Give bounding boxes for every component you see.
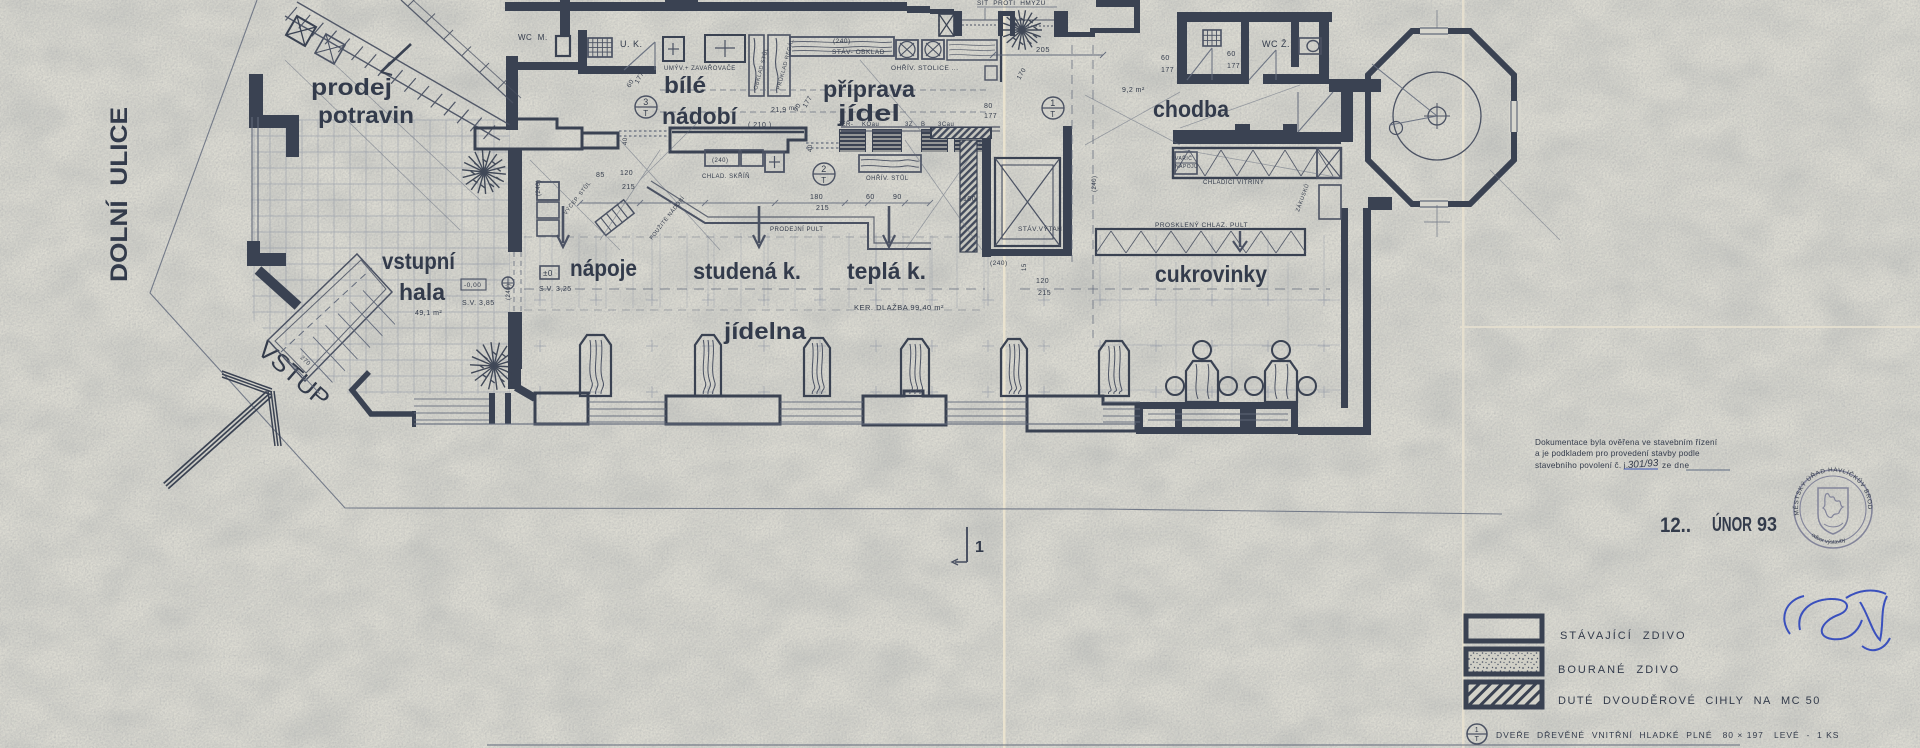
- svg-text:příprava: příprava: [823, 76, 915, 102]
- svg-text:93: 93: [1757, 514, 1777, 536]
- svg-text:9,2 m²: 9,2 m²: [1122, 87, 1145, 94]
- svg-text:nápoje: nápoje: [570, 255, 637, 281]
- svg-text:DOLNÍ ULICE: DOLNÍ ULICE: [105, 107, 133, 282]
- svg-text:(240): (240): [833, 38, 851, 45]
- svg-text:STÁV- OBKLAD: STÁV- OBKLAD: [832, 47, 885, 56]
- svg-text:prodej: prodej: [311, 74, 392, 100]
- svg-text:21,9: 21,9: [771, 107, 787, 114]
- svg-text:UMÝV.+ ZAVAŘOVAČE: UMÝV.+ ZAVAŘOVAČE: [664, 64, 736, 72]
- svg-text:2: 2: [821, 164, 827, 174]
- svg-text:1: 1: [1050, 98, 1056, 108]
- svg-text:215: 215: [816, 205, 829, 212]
- svg-text:40: 40: [623, 137, 629, 145]
- svg-text:85: 85: [596, 172, 605, 179]
- svg-text:3Cau: 3Cau: [938, 122, 954, 128]
- svg-text:nádobí: nádobí: [662, 103, 739, 129]
- svg-text:potravin: potravin: [318, 102, 414, 128]
- svg-text:U. K.: U. K.: [620, 39, 643, 49]
- svg-text:T: T: [821, 176, 826, 185]
- svg-text:60: 60: [1161, 55, 1170, 62]
- svg-text:S.V. 3,25: S.V. 3,25: [539, 286, 572, 293]
- svg-text:a je podkladem pro provedení s: a je podkladem pro provedení stavby podl…: [1535, 449, 1700, 458]
- svg-text:BOURANÉ ZDIVO: BOURANÉ ZDIVO: [1558, 663, 1680, 676]
- svg-text:80: 80: [984, 103, 993, 110]
- svg-text:chodba: chodba: [1153, 96, 1229, 122]
- svg-text:VAŘIČ: VAŘIČ: [1175, 154, 1192, 162]
- svg-text:-0,00: -0,00: [464, 282, 481, 289]
- svg-text:cukrovinky: cukrovinky: [1155, 261, 1267, 287]
- svg-text:1: 1: [1475, 727, 1479, 734]
- svg-text:jídelna: jídelna: [723, 318, 806, 344]
- svg-text:(240): (240): [506, 283, 512, 300]
- svg-text:OHŘÍV. STŮL: OHŘÍV. STŮL: [866, 174, 909, 182]
- svg-text:DVEŘE DŘEVĚNÉ VNITŘNÍ HLADK: DVEŘE DŘEVĚNÉ VNITŘNÍ HLADKÉ PLNÉ 80 × 1…: [1496, 730, 1839, 740]
- svg-text:(240): (240): [712, 158, 729, 164]
- svg-text:215: 215: [622, 184, 635, 191]
- svg-text:ÚNOR: ÚNOR: [1712, 512, 1752, 536]
- svg-text:215: 215: [1038, 290, 1051, 297]
- svg-text:177: 177: [1161, 67, 1174, 74]
- svg-text:(240): (240): [990, 260, 1008, 267]
- svg-text:DUTÉ DVOUDĚROVÉ CIHLY NA M: DUTÉ DVOUDĚROVÉ CIHLY NA MC 50: [1558, 694, 1821, 707]
- svg-text:(240): (240): [1092, 175, 1098, 192]
- svg-text:PROSKLENÝ CHLAZ. PULT: PROSKLENÝ CHLAZ. PULT: [1155, 220, 1248, 229]
- svg-text:15: 15: [1022, 263, 1028, 271]
- svg-text:120: 120: [1036, 278, 1049, 285]
- svg-text:120: 120: [620, 170, 633, 177]
- svg-text:studená k.: studená k.: [693, 258, 801, 284]
- svg-text:100: 100: [963, 196, 976, 203]
- svg-text:WC Ž.: WC Ž.: [1262, 39, 1290, 49]
- svg-text:40: 40: [808, 144, 814, 152]
- svg-text:T: T: [1050, 110, 1055, 119]
- svg-text:S.V. 3,85: S.V. 3,85: [462, 300, 495, 307]
- svg-text:CHLADÍCÍ VITRÍNY: CHLADÍCÍ VITRÍNY: [1203, 179, 1264, 186]
- svg-text:177: 177: [1227, 63, 1240, 70]
- svg-text:vstupní: vstupní: [382, 248, 456, 274]
- svg-text:180: 180: [810, 194, 823, 201]
- svg-text:WC M.: WC M.: [518, 33, 548, 42]
- svg-text:(240): (240): [536, 179, 542, 196]
- svg-text:STÁVAJÍCÍ ZDIVO: STÁVAJÍCÍ ZDIVO: [1560, 629, 1687, 642]
- svg-text:KER. DLAŽBA 99,40 m²: KER. DLAŽBA 99,40 m²: [854, 303, 944, 312]
- svg-text:teplá k.: teplá k.: [847, 258, 926, 284]
- svg-text:3Z: 3Z: [905, 122, 913, 128]
- svg-text:Dokumentace byla ověřena ve st: Dokumentace byla ověřena ve stavebním ří…: [1535, 438, 1718, 447]
- svg-text:JEŘ-: JEŘ-: [838, 120, 853, 128]
- svg-text:177: 177: [984, 113, 997, 120]
- svg-text:ze dne: ze dne: [1662, 461, 1690, 470]
- svg-text:49,1 m²: 49,1 m²: [415, 310, 442, 317]
- svg-text:T: T: [1475, 736, 1480, 743]
- svg-text:( 210 ): ( 210 ): [748, 122, 772, 129]
- svg-text:SÍŤ PROTI HMYZU: SÍŤ PROTI HMYZU: [977, 0, 1046, 7]
- svg-text:CHLAD. SKŘÍŇ: CHLAD. SKŘÍŇ: [702, 172, 750, 180]
- svg-text:T: T: [643, 109, 648, 118]
- svg-text:205: 205: [1036, 45, 1050, 54]
- svg-text:90: 90: [893, 194, 902, 201]
- svg-text:stavebního povolení č. j.: stavebního povolení č. j.: [1535, 461, 1628, 470]
- svg-text:bílé: bílé: [664, 72, 706, 98]
- svg-text:NÁPOJŮ: NÁPOJŮ: [1175, 163, 1198, 170]
- svg-text:OHŘÍV. STOLICE ...: OHŘÍV. STOLICE ...: [891, 63, 959, 72]
- svg-text:1: 1: [975, 539, 984, 556]
- svg-text:hala: hala: [399, 279, 445, 305]
- svg-text:KOau: KOau: [862, 122, 879, 128]
- svg-text:PRODEJNÍ PULT: PRODEJNÍ PULT: [770, 226, 823, 233]
- svg-text:12..: 12..: [1660, 514, 1691, 537]
- svg-text:B: B: [921, 122, 926, 128]
- svg-text:STÁV.VÝTAH: STÁV.VÝTAH: [1018, 224, 1062, 233]
- svg-text:±0: ±0: [543, 269, 553, 278]
- svg-text:60: 60: [1227, 51, 1236, 58]
- svg-text:3: 3: [643, 97, 649, 107]
- svg-text:60: 60: [866, 194, 875, 201]
